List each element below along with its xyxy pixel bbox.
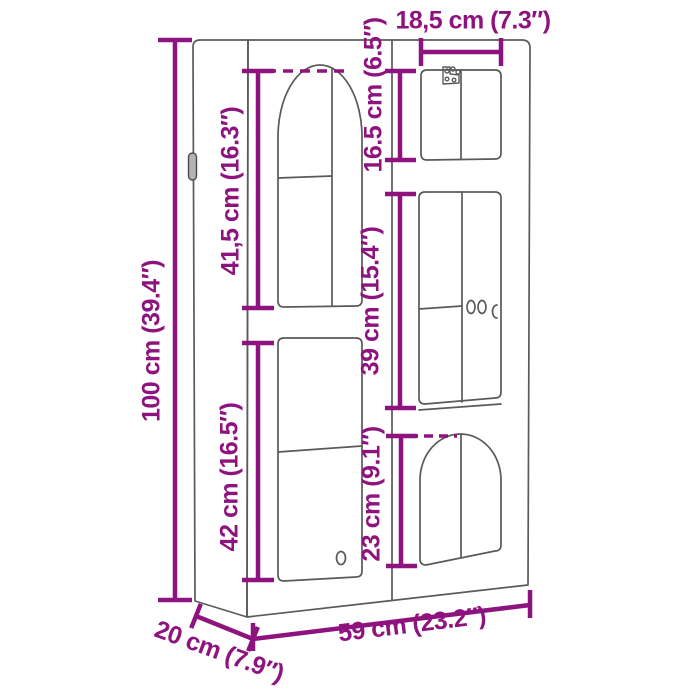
cabinet-line-art	[0, 0, 700, 700]
dim-label-lower-right-door-height: 23 cm (9.1″)	[358, 426, 387, 561]
dim-label-top-compartment-height: 16.5 cm (6.5″)	[360, 17, 389, 172]
left-edge-hinge-detail	[189, 153, 197, 180]
dim-label-upper-left-door-height: 41,5 cm (16.3″)	[217, 107, 246, 275]
dim-line-top-compartment-height	[385, 71, 416, 160]
lower-left-door-handle	[337, 552, 346, 565]
middle-right-door-bottom-edge	[419, 404, 501, 410]
dim-line-middle-right-door	[385, 194, 416, 408]
dim-line-top-compartment-width	[421, 38, 501, 66]
lower-left-shelf-line	[278, 446, 362, 452]
middle-right-door-handle-2	[478, 301, 486, 314]
lower-left-door	[278, 338, 362, 581]
upper-left-arch-door	[278, 65, 362, 307]
mounting-bracket	[443, 67, 460, 84]
dim-label-middle-right-door-height: 39 cm (15.4″)	[357, 227, 386, 376]
dim-line-lower-right-door	[386, 436, 457, 566]
upper-left-shelf-line	[278, 176, 332, 178]
middle-right-door-handle-1	[467, 301, 475, 314]
middle-right-shelf-line	[419, 306, 462, 309]
middle-right-edge-handle	[493, 305, 498, 318]
middle-right-door	[419, 192, 501, 404]
dim-label-top-compartment-width: 18,5 cm (7.3″)	[395, 7, 550, 36]
cabinet-front-face	[247, 40, 530, 617]
product-dimension-diagram: 18,5 cm (7.3″) 16.5 cm (6.5″) 41,5 cm (1…	[0, 0, 700, 700]
dim-label-lower-left-door-height: 42 cm (16.5″)	[216, 403, 245, 552]
dim-label-overall-height: 100 cm (39.4″)	[138, 260, 167, 422]
